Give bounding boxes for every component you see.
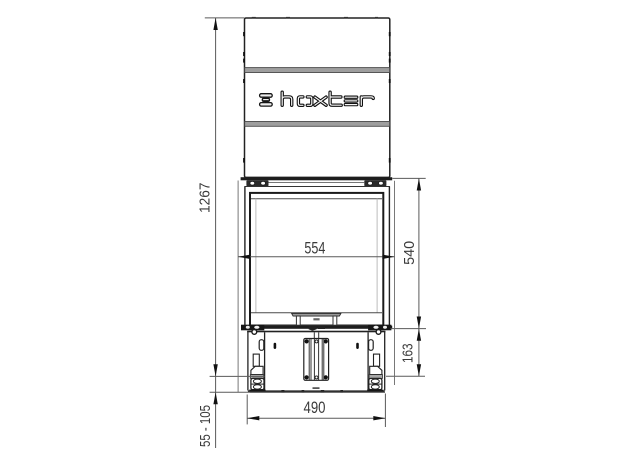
svg-text:55 - 105: 55 - 105 [198, 405, 214, 447]
svg-text:540: 540 [402, 241, 418, 265]
svg-text:554: 554 [304, 239, 325, 258]
svg-text:163: 163 [400, 344, 416, 364]
svg-text:490: 490 [304, 398, 326, 417]
svg-text:1267: 1267 [197, 182, 213, 213]
